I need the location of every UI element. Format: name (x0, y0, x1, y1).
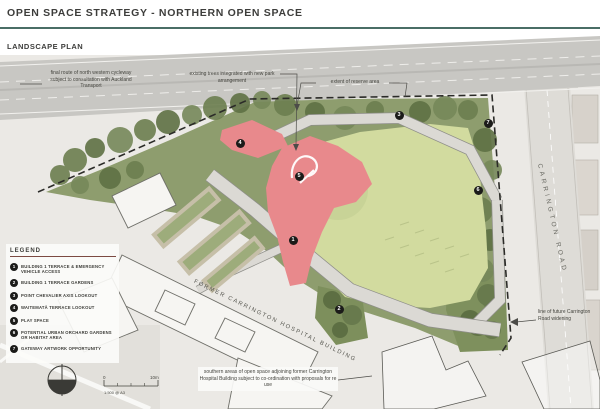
legend-item: 5 PLAY SPACE (10, 317, 116, 325)
legend-item: 3 POINT CHEVALIER AXIS LOOKOUT (10, 292, 116, 300)
page-title: OPEN SPACE STRATEGY - NORTHERN OPEN SPAC… (7, 7, 303, 19)
legend-item-label: POINT CHEVALIER AXIS LOOKOUT (21, 292, 97, 298)
legend-item: 4 WAITEMATĀ TERRACE LOOKOUT (10, 304, 116, 312)
north-arrow-icon (44, 362, 80, 398)
annotation-road-widening: line of future Carrington Road widening (538, 309, 596, 322)
title-rule (0, 27, 600, 29)
plan-marker-6: 6 (474, 186, 483, 195)
legend-title: LEGEND (10, 248, 116, 257)
legend-item-label: WAITEMATĀ TERRACE LOOKOUT (21, 304, 95, 310)
scale-bar: 0 10m 1:500 @ A3 (102, 372, 166, 402)
legend-item-number: 3 (10, 292, 18, 300)
plan-marker-3: 3 (395, 111, 404, 120)
legend-items: 1 BUILDING 1 TERRACE & EMERGENCY VEHICLE… (10, 263, 116, 353)
plan-subtitle: LANDSCAPE PLAN (7, 42, 83, 51)
legend-item-number: 7 (10, 345, 18, 353)
plan-marker-1: 1 (289, 236, 298, 245)
legend-item-label: GATEWAY ARTWORK OPPORTUNITY (21, 345, 101, 351)
plan-marker-2: 2 (335, 305, 344, 314)
annotation-reserve-extent: extent of reserve area (316, 79, 394, 86)
legend-item-label: BUILDING 1 TERRACE & EMERGENCY VEHICLE A… (21, 263, 116, 275)
legend-item-number: 1 (10, 263, 18, 271)
legend-item: 6 POTENTIAL URBAN ORCHARD GARDENS OR HAB… (10, 329, 116, 341)
scale-start-label: 0 (103, 375, 106, 380)
legend-item: 7 GATEWAY ARTWORK OPPORTUNITY (10, 345, 116, 353)
legend-item-label: BUILDING 1 TERRACE GARDENS (21, 279, 93, 285)
legend-item: 1 BUILDING 1 TERRACE & EMERGENCY VEHICLE… (10, 263, 116, 275)
legend-panel: LEGEND 1 BUILDING 1 TERRACE & EMERGENCY … (6, 244, 119, 363)
plan-marker-4: 4 (236, 139, 245, 148)
annotation-existing-trees: existing trees integrated with new park … (183, 71, 281, 84)
legend-item-label: PLAY SPACE (21, 317, 49, 323)
legend-item-number: 4 (10, 304, 18, 312)
scale-end-label: 10m (150, 375, 159, 380)
legend-item-number: 5 (10, 317, 18, 325)
plan-marker-5: 5 (295, 172, 304, 181)
scale-ratio-label: 1:500 @ A3 (104, 390, 126, 395)
annotation-southern-areas: southern areas of open space adjoining f… (198, 367, 338, 391)
legend-item-label: POTENTIAL URBAN ORCHARD GARDENS OR HABIT… (21, 329, 116, 341)
legend-item-number: 2 (10, 279, 18, 287)
annotation-cycleway: final route of north western cycleway su… (50, 70, 132, 90)
legend-item-number: 6 (10, 329, 18, 337)
legend-item: 2 BUILDING 1 TERRACE GARDENS (10, 279, 116, 287)
plan-marker-7: 7 (484, 119, 493, 128)
